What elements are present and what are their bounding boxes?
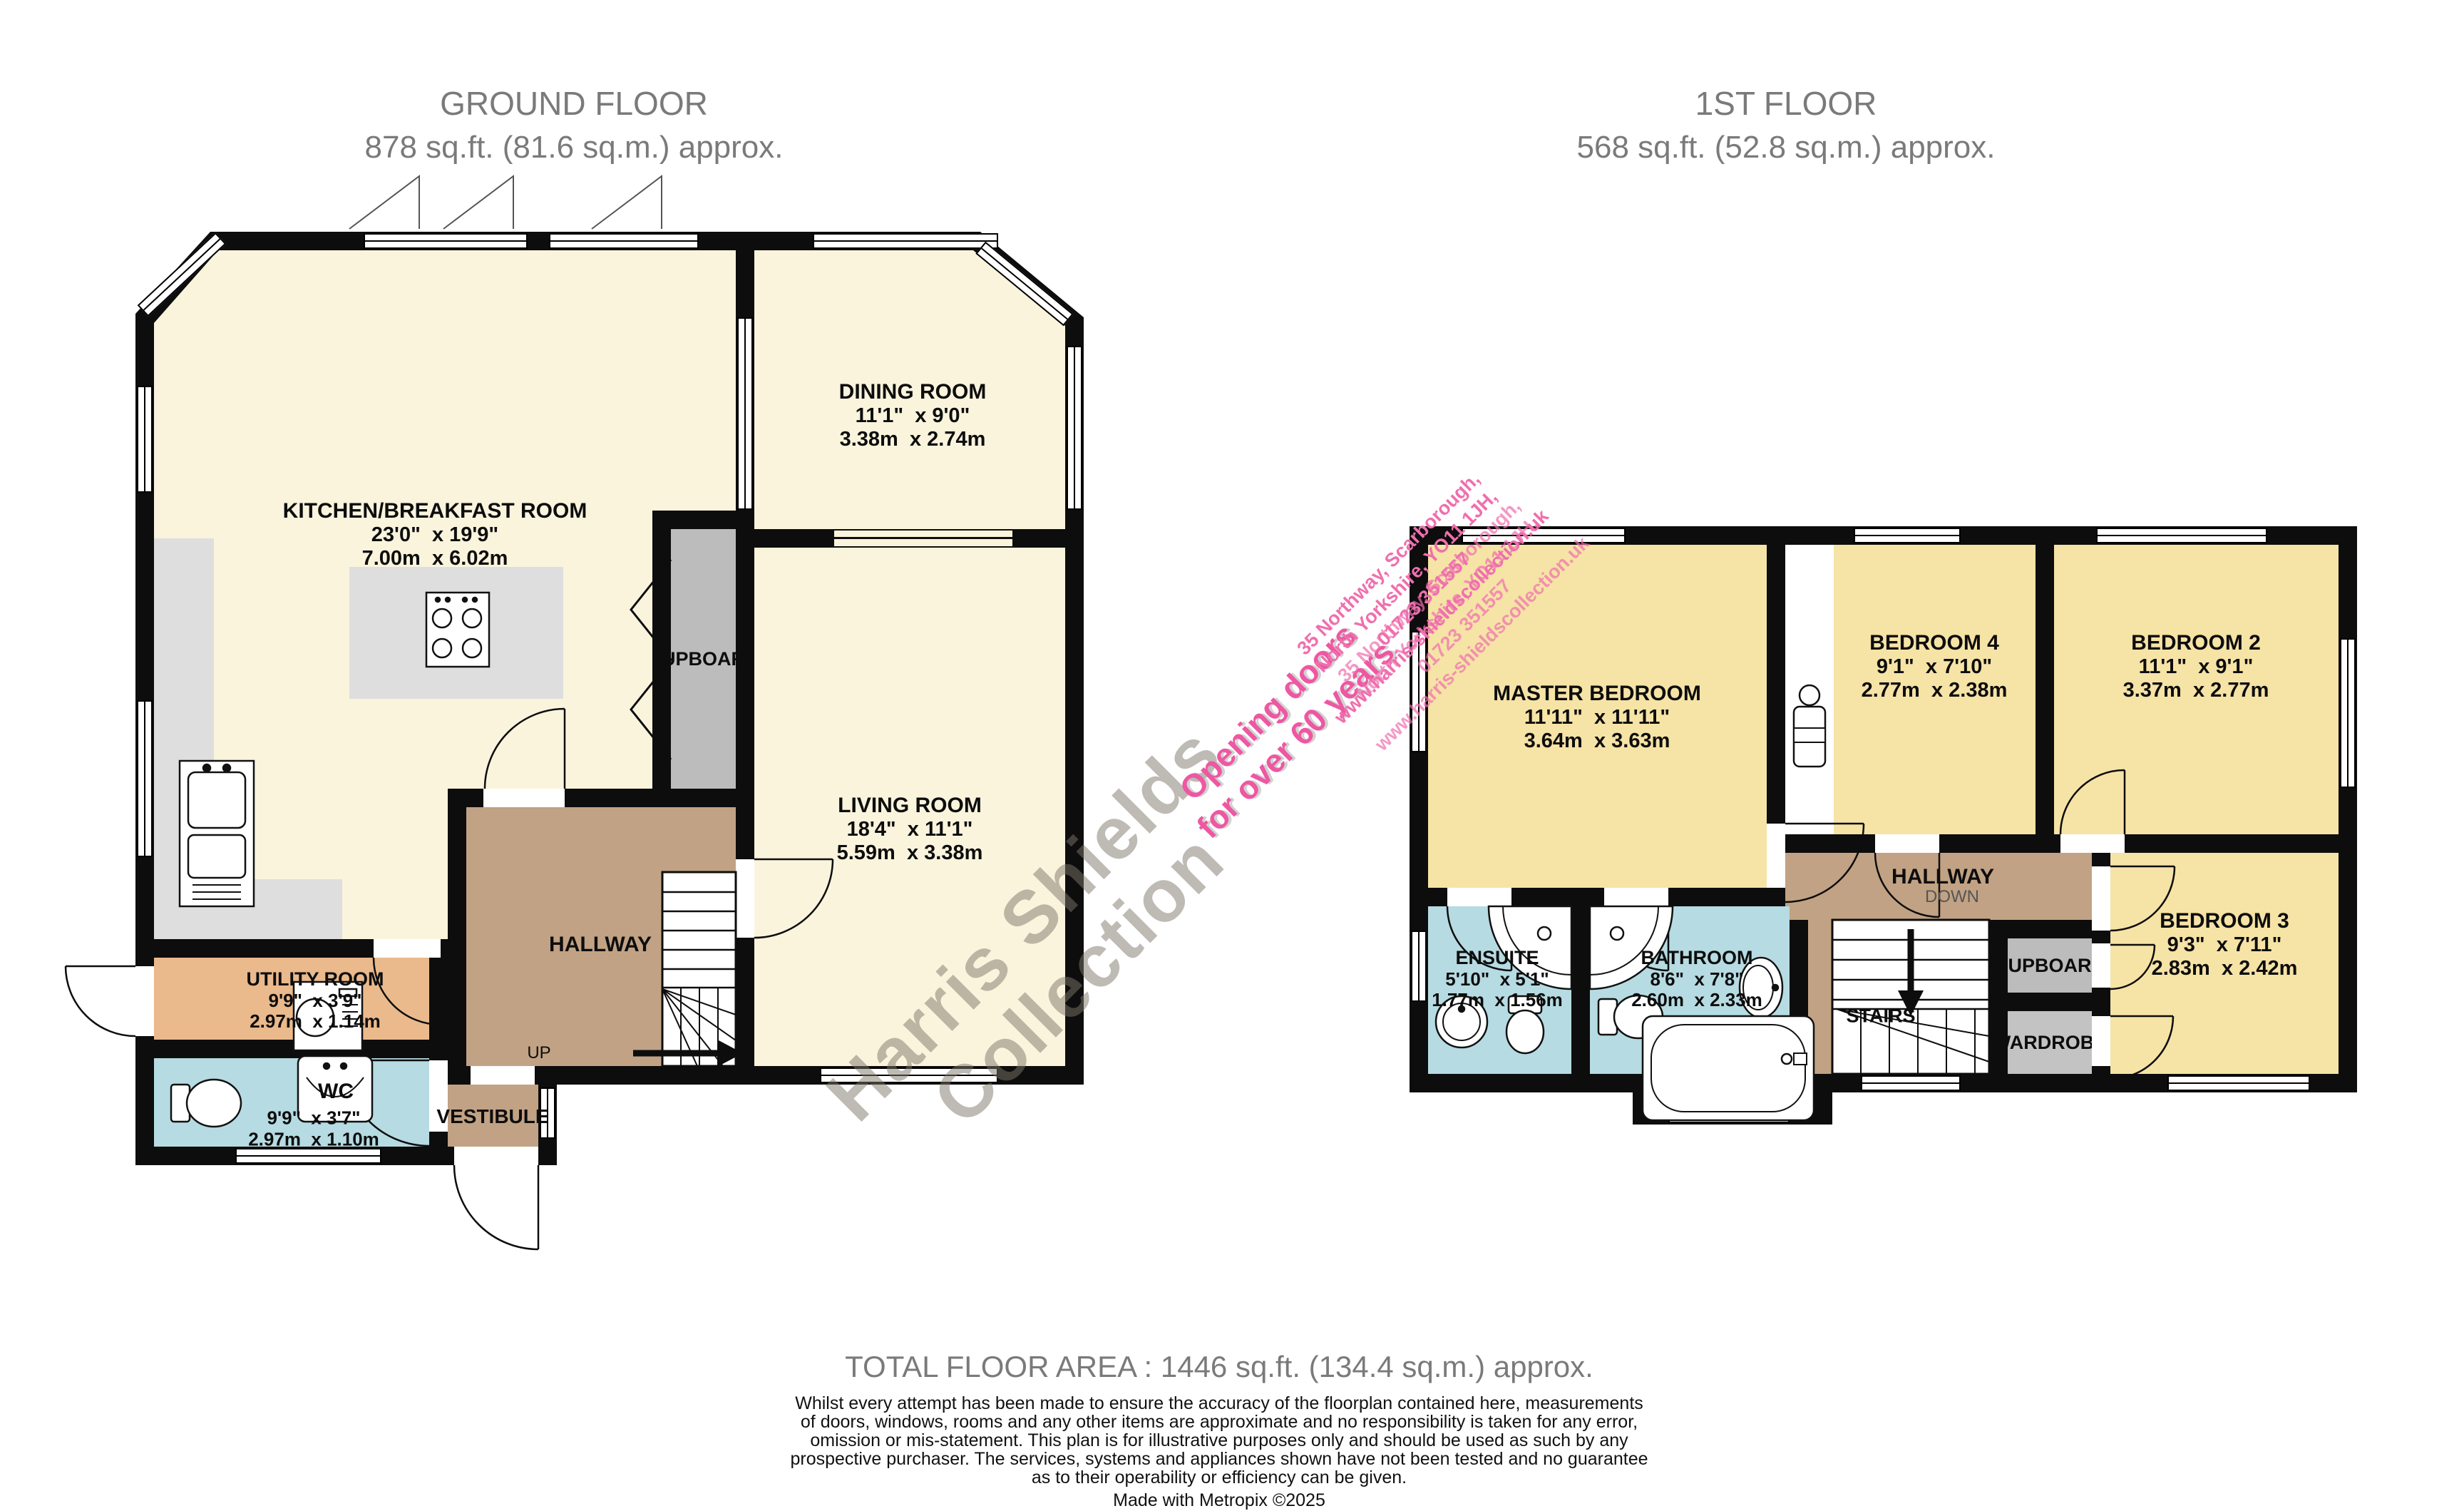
ground-floor-title-line1: GROUND FLOOR <box>365 84 784 123</box>
cupboard-door-arc <box>2110 945 2155 989</box>
wc-dims-label: 9'9" x 3'7" 2.97m x 1.10m <box>248 1107 379 1149</box>
ground-floor-area: 878 sq.ft. (81.6 sq.m.) approx. <box>365 130 784 165</box>
first-floor-title: 1ST FLOOR 568 sq.ft. (52.8 sq.m.) approx… <box>1577 84 1996 165</box>
vestibule-label: VESTIBULE <box>436 1105 548 1128</box>
footer: TOTAL FLOOR AREA : 1446 sq.ft. (134.4 sq… <box>790 1350 1648 1511</box>
wc-name-label: WC <box>318 1080 354 1104</box>
first-floor-title-line1: 1ST FLOOR <box>1577 84 1996 123</box>
up-label: UP <box>527 1043 550 1063</box>
bedroom2-door-arc <box>2060 770 2125 834</box>
ground-hallway-label: HALLWAY <box>549 933 652 957</box>
first-floor-area: 568 sq.ft. (52.8 sq.m.) approx. <box>1577 130 1996 165</box>
ensuite-label: ENSUITE 5'10" x 5'1" 1.77m x 1.56m <box>1432 947 1563 1011</box>
cupboard-bifold-doors <box>631 560 671 759</box>
roofline-marks <box>349 176 662 229</box>
down-label: DOWN <box>1925 887 1979 907</box>
utility-exterior-door-arc <box>66 966 135 1036</box>
ground-stairs-symbol <box>633 872 743 1066</box>
ground-floor-plan: CUPBOARD <box>135 232 1091 1273</box>
master-door-arc <box>1785 824 1864 902</box>
nook-furniture-icon <box>1794 685 1825 767</box>
disclaimer: Whilst every attempt has been made to en… <box>790 1394 1648 1511</box>
metropix-credit: Made with Metropix ©2025 <box>790 1490 1648 1511</box>
stove-icon <box>426 593 489 667</box>
living-label: LIVING ROOM 18'4" x 11'1" 5.59m x 3.38m <box>837 794 983 865</box>
wardrobe-door-arc <box>2110 1016 2173 1079</box>
kitchen-sink-icon <box>180 761 254 906</box>
bathroom-label: BATHROOM 8'6" x 7'8" 2.60m x 2.33m <box>1631 947 1762 1011</box>
first-floor-symbols <box>1376 503 2410 1180</box>
dining-label: DINING ROOM 11'1" x 9'0" 3.38m x 2.74m <box>839 380 987 451</box>
first-stairs-symbol <box>1832 920 1989 1074</box>
kitchen-door-arc <box>485 709 565 789</box>
wc-toilet-icon <box>171 1080 241 1127</box>
ground-floor-symbols <box>21 139 1233 1316</box>
first-floor-plan: CUPBOARD WARDROBE <box>1390 517 2388 1159</box>
living-door-arc <box>754 859 833 938</box>
stairs-label: STAIRS <box>1846 1005 1915 1028</box>
floorplan-page: { "titles": { "ground": {"line1": "GROUN… <box>0 0 2464 1490</box>
front-door-arc <box>454 1165 538 1249</box>
kitchen-label: KITCHEN/BREAKFAST ROOM 23'0" x 19'9" 7.0… <box>283 499 587 570</box>
bedroom3-label: BEDROOM 3 9'3" x 7'11" 2.83m x 2.42m <box>2152 909 2298 980</box>
total-floor-area: TOTAL FLOOR AREA : 1446 sq.ft. (134.4 sq… <box>790 1350 1648 1384</box>
bedroom4-label: BEDROOM 4 9'1" x 7'10" 2.77m x 2.38m <box>1862 631 2008 702</box>
first-hallway-label: HALLWAY <box>1891 865 1994 889</box>
utility-label: UTILITY ROOM 9'9" x 3'9" 2.97m x 1.14m <box>247 968 384 1033</box>
master-bedroom-label: MASTER BEDROOM 11'11" x 11'11" 3.64m x 3… <box>1493 682 1701 753</box>
ground-floor-title: GROUND FLOOR 878 sq.ft. (81.6 sq.m.) app… <box>365 84 784 165</box>
bath-icon <box>1643 1016 1814 1120</box>
bedroom2-label: BEDROOM 2 11'1" x 9'1" 3.37m x 2.77m <box>2123 631 2269 702</box>
